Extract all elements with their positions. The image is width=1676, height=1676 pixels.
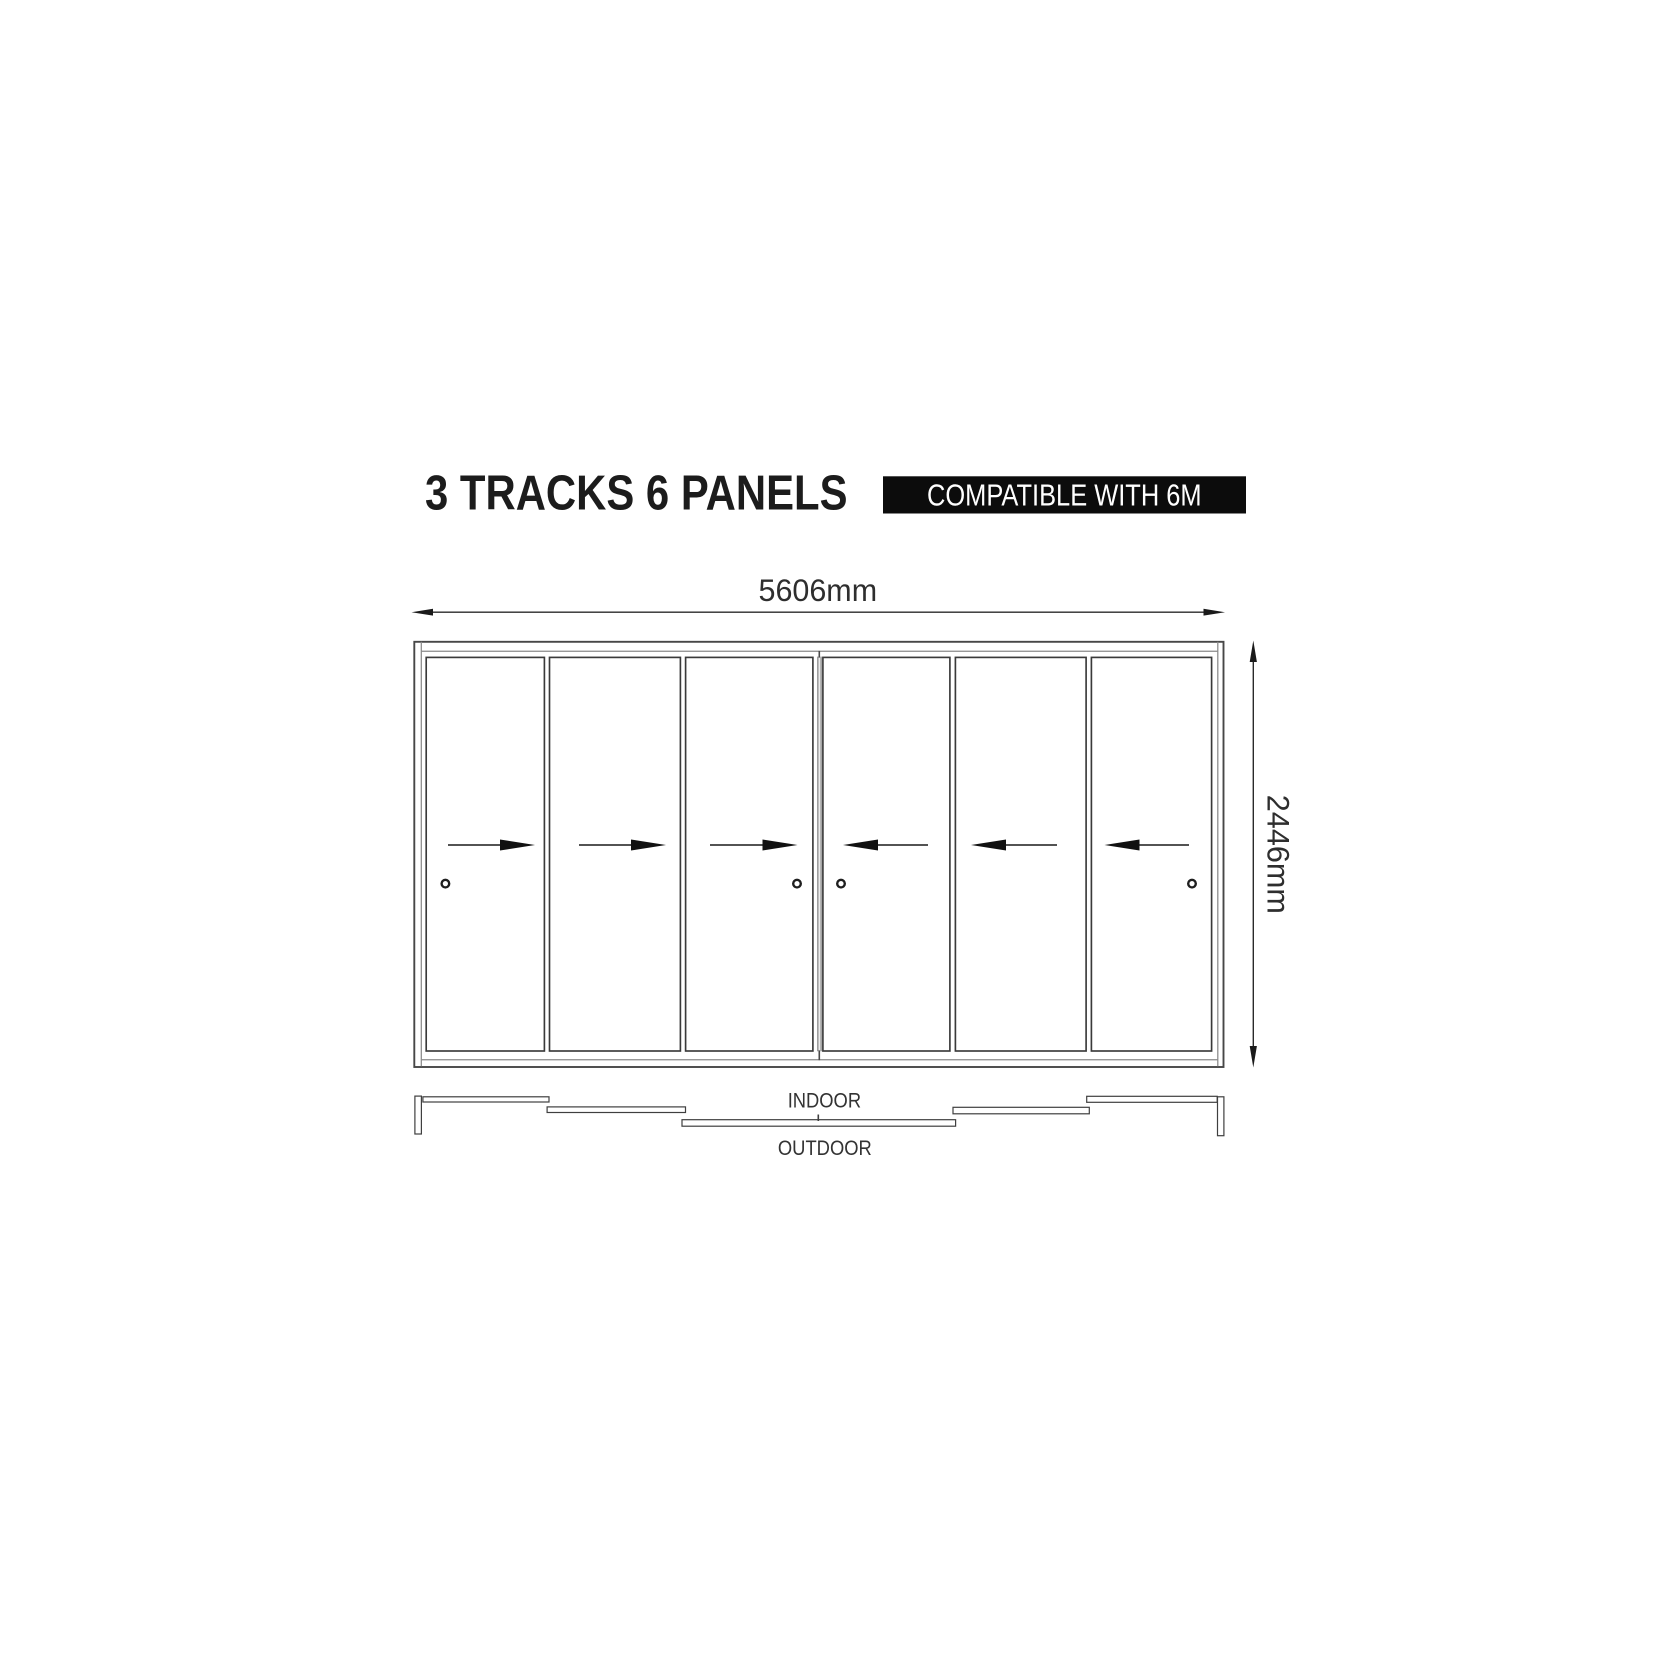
svg-text:2446mm: 2446mm [1261, 795, 1297, 914]
svg-text:INDOOR: INDOOR [788, 1090, 861, 1113]
svg-text:3 TRACKS 6 PANELS: 3 TRACKS 6 PANELS [425, 467, 848, 521]
svg-text:OUTDOOR: OUTDOOR [778, 1137, 872, 1160]
svg-text:5606mm: 5606mm [759, 572, 878, 608]
svg-text:COMPATIBLE WITH 6M: COMPATIBLE WITH 6M [927, 479, 1202, 513]
